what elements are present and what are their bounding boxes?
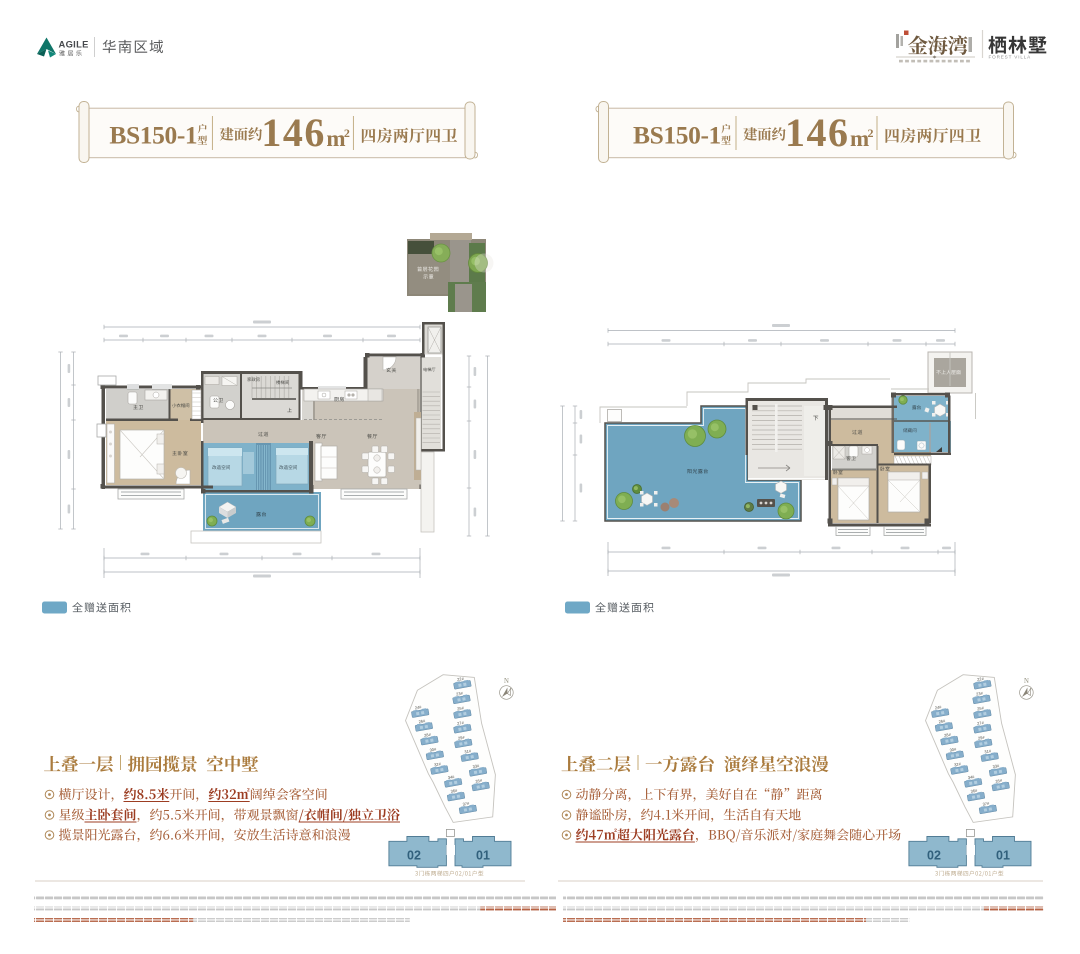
svg-text:m: m bbox=[326, 126, 345, 151]
svg-text:m: m bbox=[850, 126, 869, 151]
svg-text:146: 146 bbox=[785, 110, 850, 155]
svg-text:02: 02 bbox=[927, 849, 941, 863]
svg-text:02: 02 bbox=[407, 849, 421, 863]
svg-text:146: 146 bbox=[261, 110, 326, 155]
svg-text:FOREST VILLA: FOREST VILLA bbox=[989, 54, 1032, 59]
svg-text:01: 01 bbox=[476, 849, 490, 863]
svg-text:2: 2 bbox=[344, 126, 350, 140]
svg-text:N: N bbox=[504, 678, 509, 685]
svg-text:BS150-1: BS150-1 bbox=[109, 121, 197, 150]
svg-text:BS150-1: BS150-1 bbox=[633, 121, 721, 150]
svg-text:AGILE: AGILE bbox=[59, 39, 89, 50]
svg-text:2: 2 bbox=[868, 126, 874, 140]
svg-text:N: N bbox=[1024, 678, 1029, 685]
svg-text:01: 01 bbox=[996, 849, 1010, 863]
